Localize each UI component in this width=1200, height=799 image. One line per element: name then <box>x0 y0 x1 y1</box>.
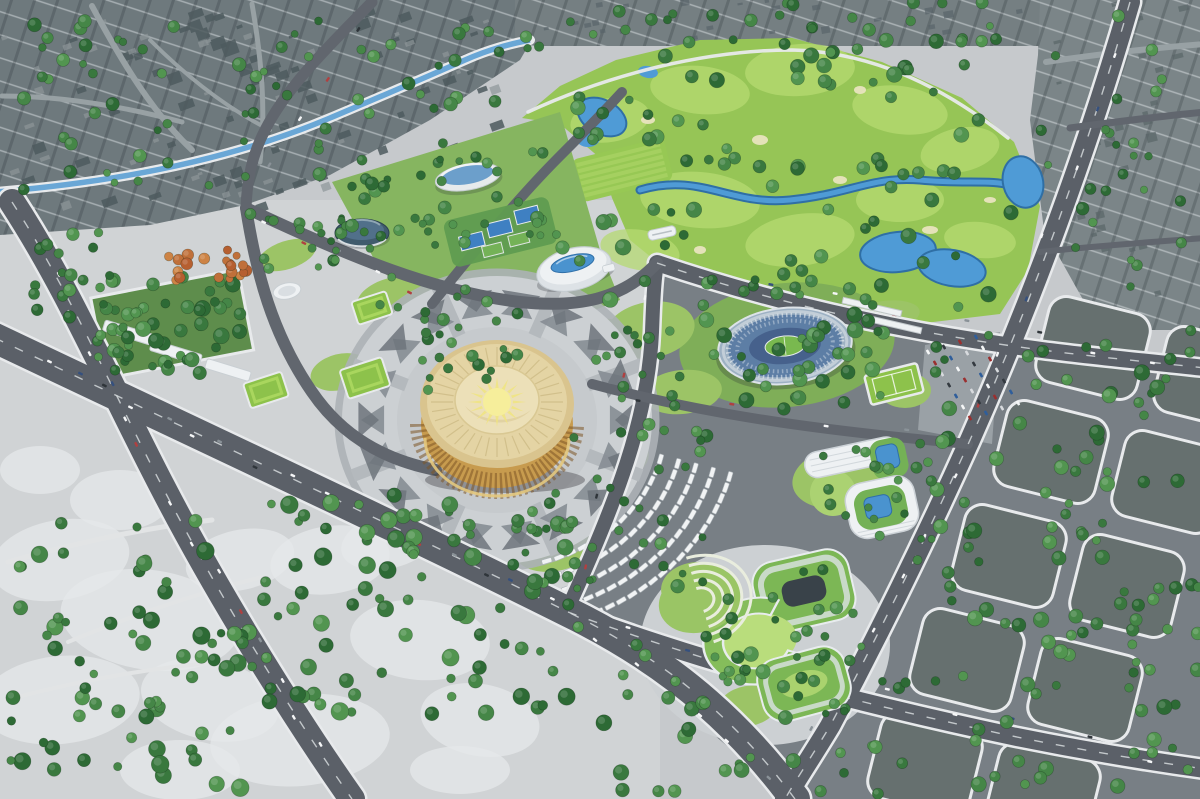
masterplan-render <box>0 0 1200 799</box>
arena-sun-center <box>483 388 511 416</box>
aerial-masterplan-scene <box>0 0 1200 799</box>
